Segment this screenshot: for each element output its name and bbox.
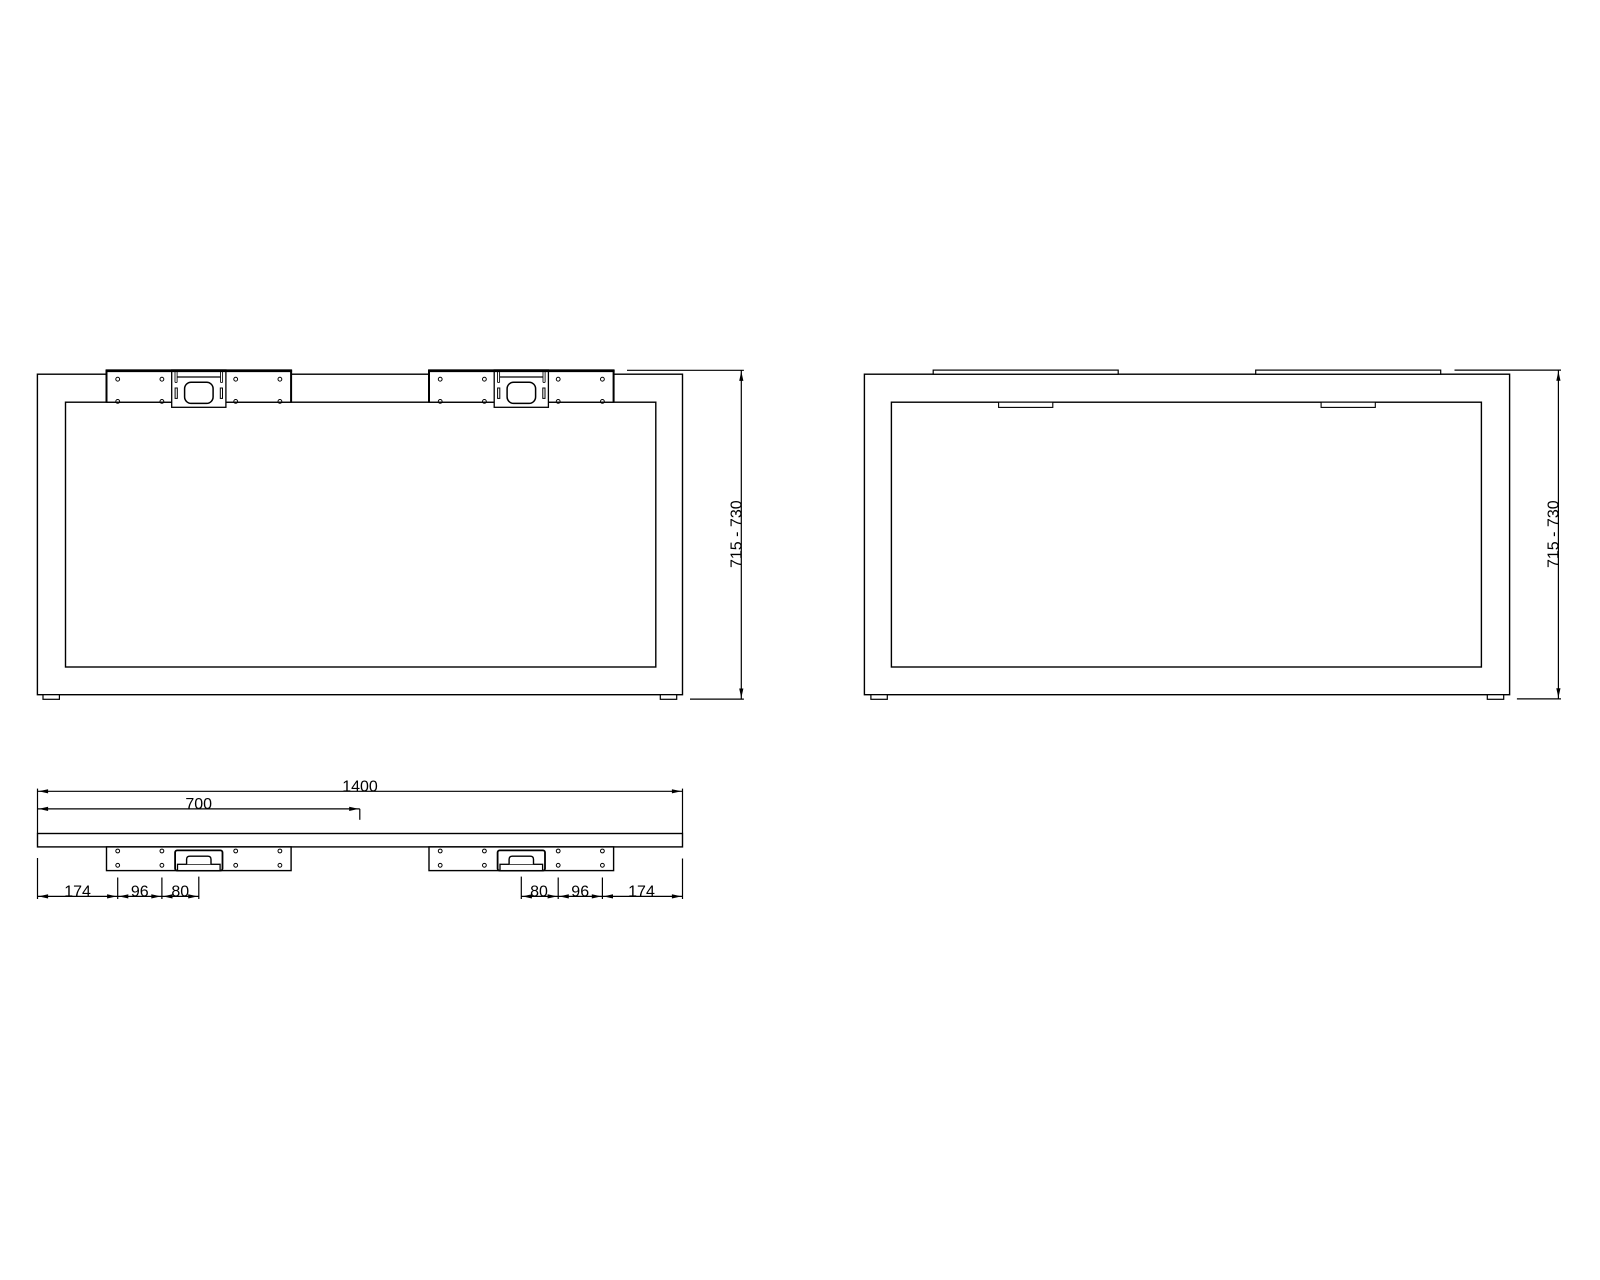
svg-text:80: 80 [530,884,548,901]
svg-text:174: 174 [64,884,91,901]
svg-text:715 - 730: 715 - 730 [1546,500,1563,568]
svg-text:1400: 1400 [342,778,378,795]
svg-text:700: 700 [185,796,212,813]
svg-text:715 - 730: 715 - 730 [728,500,745,568]
svg-text:174: 174 [628,884,655,901]
svg-text:96: 96 [571,884,589,901]
svg-text:96: 96 [131,884,149,901]
svg-text:80: 80 [171,884,189,901]
